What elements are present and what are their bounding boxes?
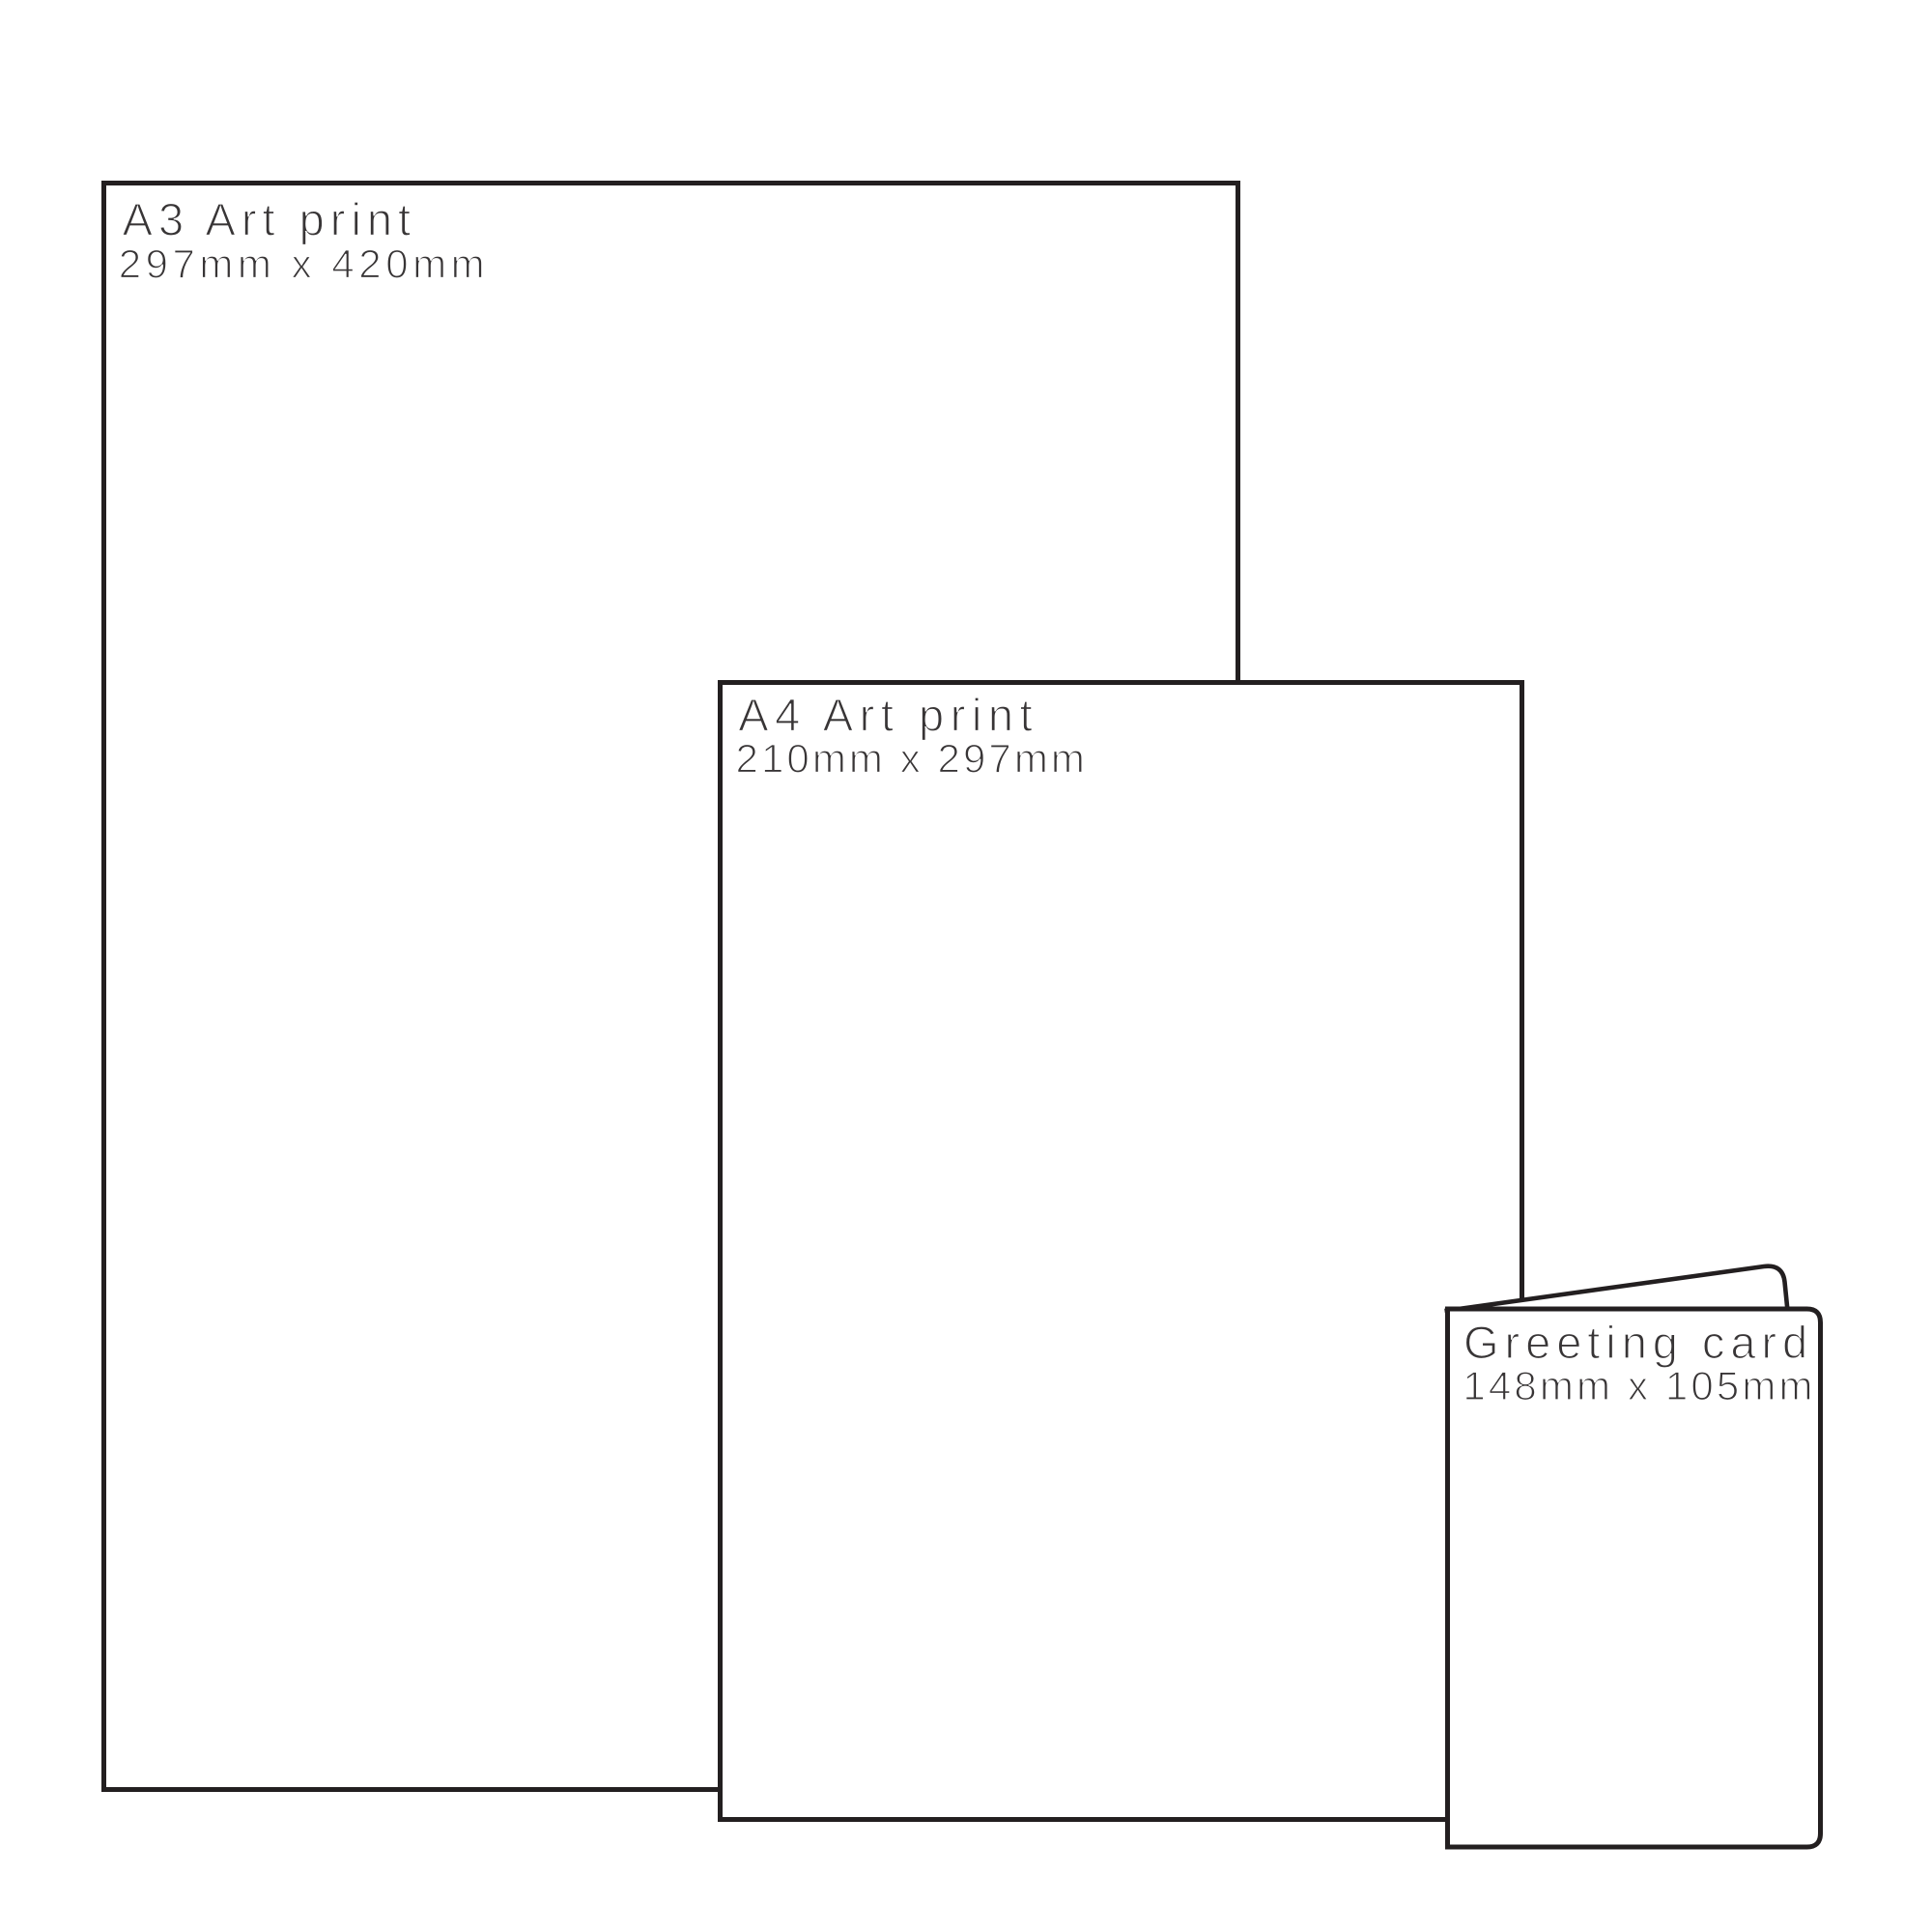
- svg-text:210mm x 297mm: 210mm x 297mm: [736, 736, 1088, 781]
- svg-text:297mm x 420mm: 297mm x 420mm: [119, 241, 489, 287]
- svg-text:148mm x 105mm: 148mm x 105mm: [1463, 1363, 1815, 1408]
- svg-text:A3 Art print: A3 Art print: [123, 194, 417, 245]
- svg-text:A4 Art print: A4 Art print: [738, 690, 1038, 741]
- svg-text:Greeting card: Greeting card: [1463, 1317, 1813, 1368]
